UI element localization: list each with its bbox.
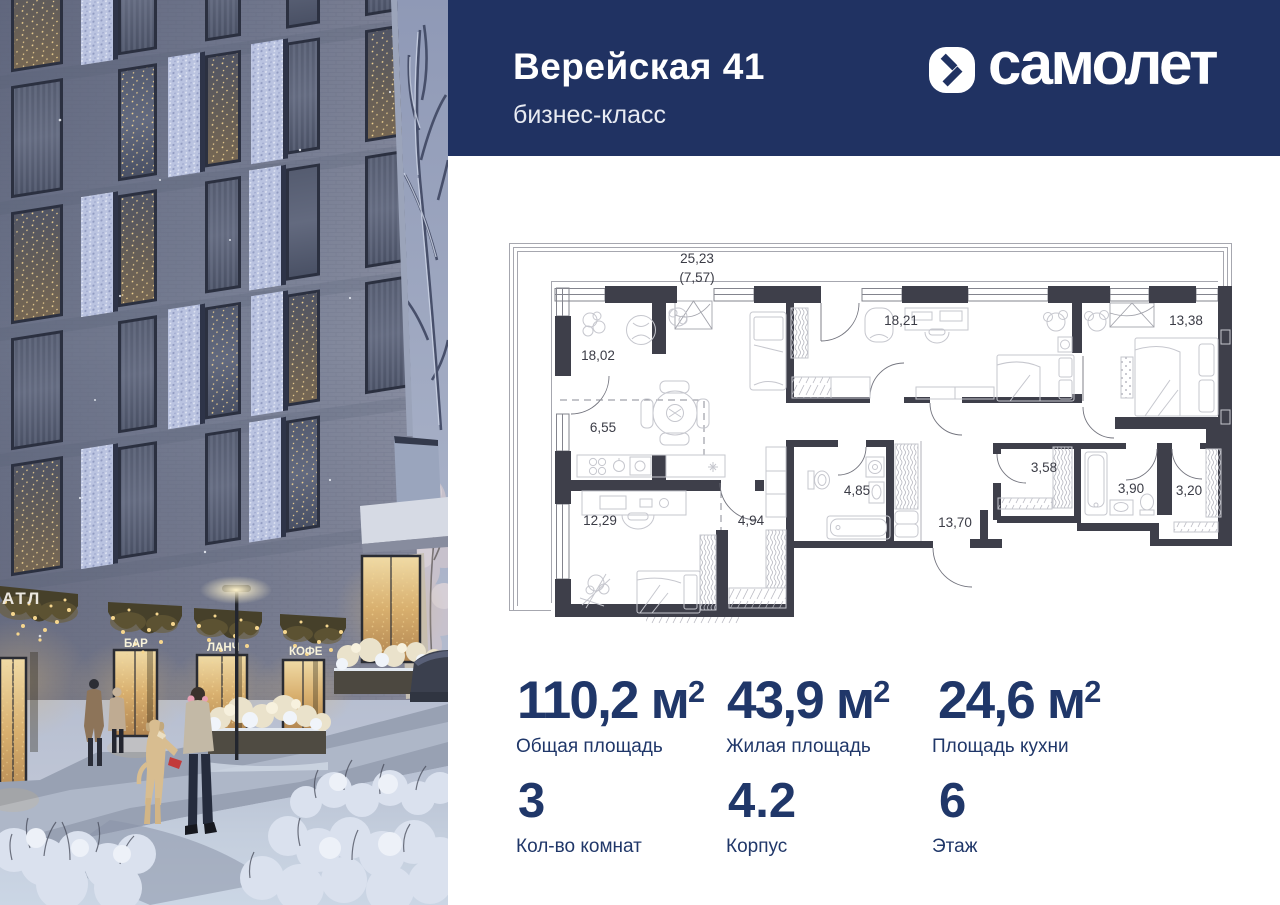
svg-text:18,21: 18,21	[884, 313, 918, 328]
svg-text:13,38: 13,38	[1169, 313, 1203, 328]
svg-text:БАР: БАР	[124, 638, 148, 650]
svg-text:КОФЕ: КОФЕ	[289, 646, 323, 658]
svg-text:3,90: 3,90	[1118, 481, 1144, 496]
svg-text:(7,57): (7,57)	[679, 270, 714, 285]
svg-text:ЛАНЧ: ЛАНЧ	[207, 642, 240, 654]
svg-text:3,20: 3,20	[1176, 483, 1202, 498]
svg-text:12,29: 12,29	[583, 513, 617, 528]
svg-text:3,58: 3,58	[1031, 460, 1057, 475]
svg-text:25,23: 25,23	[680, 251, 714, 266]
svg-text:6,55: 6,55	[590, 420, 616, 435]
svg-text:18,02: 18,02	[581, 348, 615, 363]
svg-text:13,70: 13,70	[938, 515, 972, 530]
svg-text:4,94: 4,94	[738, 513, 765, 528]
svg-text:самолет: самолет	[988, 46, 1217, 96]
svg-text:4,85: 4,85	[844, 483, 870, 498]
svg-text:АТЛ: АТЛ	[2, 589, 41, 608]
